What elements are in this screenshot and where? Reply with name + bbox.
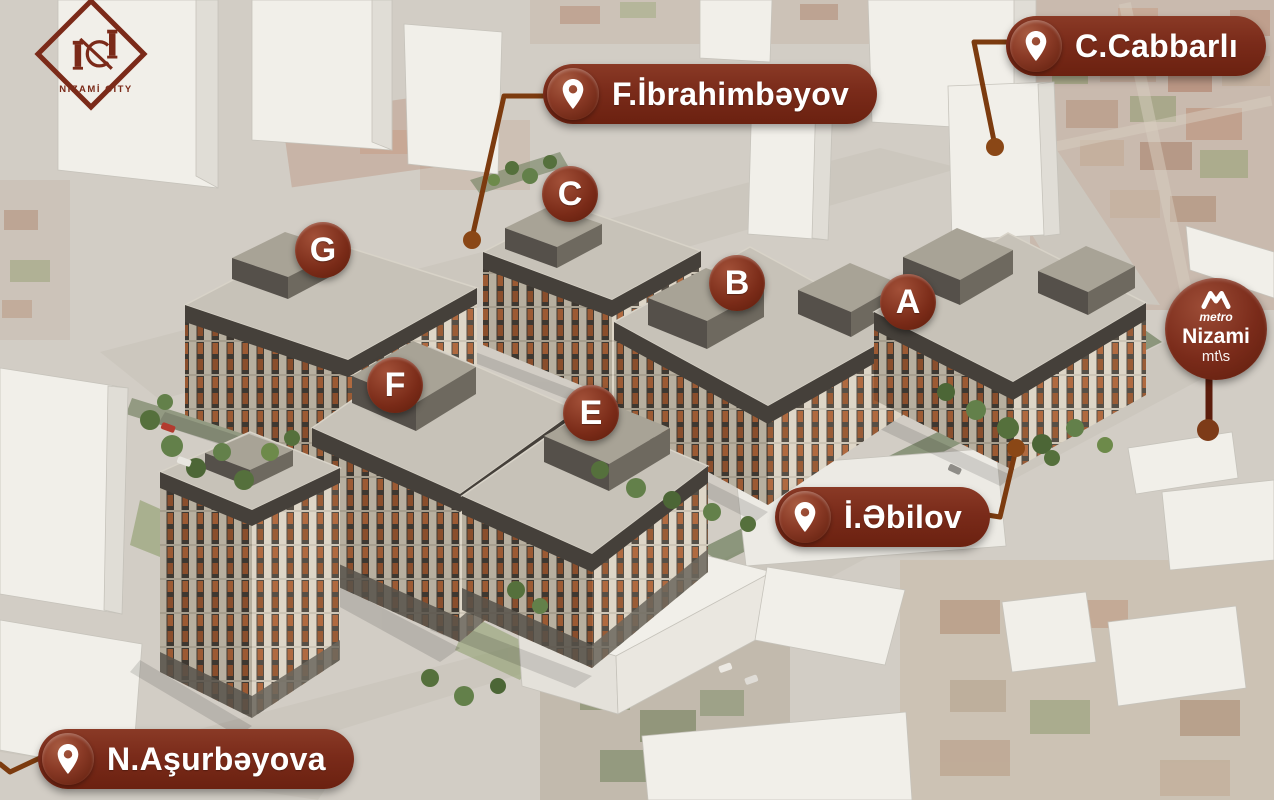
street-label-cabbarli: C.Cabbarlı — [1006, 16, 1266, 76]
street-label-text: N.Aşurbəyova — [107, 741, 330, 778]
street-label-text: İ.Əbilov — [844, 499, 966, 536]
street-label-ibrahimbayov: F.İbrahimbəyov — [543, 64, 877, 124]
metro-station-badge: metro Nizami mt\s — [1165, 278, 1267, 380]
street-label-text: F.İbrahimbəyov — [612, 76, 853, 113]
location-pin-icon — [42, 733, 94, 785]
building-badge-c[interactable]: C — [542, 166, 598, 222]
building-badge-e[interactable]: E — [563, 385, 619, 441]
building-badge-a[interactable]: A — [880, 274, 936, 330]
metro-station-suffix: mt\s — [1202, 349, 1230, 364]
building-badge-g[interactable]: G — [295, 222, 351, 278]
logo-title: NİZAMİ CİTY — [26, 84, 166, 95]
building-letter: E — [580, 394, 603, 433]
building-letter: C — [558, 175, 583, 214]
location-pin-icon — [1010, 20, 1062, 72]
metro-station-name: Nizami — [1182, 325, 1250, 349]
building-letter: A — [896, 283, 921, 322]
metro-badge-stick — [1197, 376, 1219, 441]
connector-ibrahimbayov — [463, 96, 556, 249]
masterplan-canvas: NİZAMİ CİTY F.İbrahimbəyov C.Cabbarlı İ.… — [0, 0, 1274, 800]
nizami-city-logo: NİZAMİ CİTY — [36, 2, 160, 120]
building-badge-f[interactable]: F — [367, 357, 423, 413]
street-label-abilov: İ.Əbilov — [775, 487, 990, 547]
building-letter: B — [725, 264, 750, 303]
location-pin-icon — [547, 68, 599, 120]
connector-asurbayova — [0, 757, 42, 772]
metro-logo-icon — [1198, 290, 1234, 310]
building-letter: G — [310, 231, 336, 270]
street-label-asurbayova: N.Aşurbəyova — [38, 729, 354, 789]
metro-brand-text: metro — [1199, 311, 1232, 323]
location-pin-icon — [779, 491, 831, 543]
logo-nc-monogram-icon — [66, 26, 126, 78]
building-letter: F — [385, 366, 406, 405]
building-badge-b[interactable]: B — [709, 255, 765, 311]
street-label-text: C.Cabbarlı — [1075, 28, 1242, 65]
